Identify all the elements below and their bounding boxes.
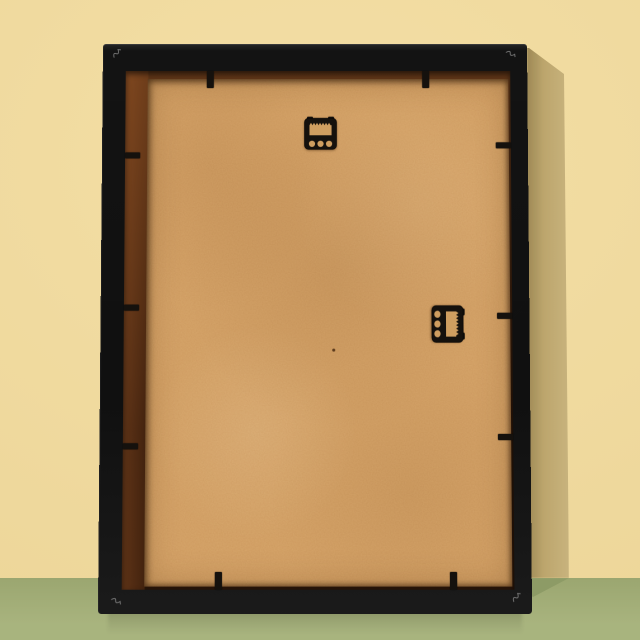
sawtooth-hanger-side-icon: [429, 304, 468, 344]
flexi-tab-bottom-right: [450, 572, 457, 590]
v-nail-mark-top-right: [504, 47, 518, 61]
flexi-tab-top-left: [207, 71, 214, 88]
flexi-tab-top-right: [422, 71, 429, 88]
speck: [332, 349, 335, 352]
flexi-tab-right-1: [496, 142, 511, 148]
flexi-tab-bottom-left: [215, 572, 222, 590]
flexi-tab-left-2: [124, 305, 139, 311]
flexi-tab-right-2: [497, 313, 512, 319]
v-nail-mark-bottom-left: [109, 594, 124, 608]
photo-back-of-picture-frame: [0, 0, 640, 640]
cast-shadow-on-wall: [527, 47, 569, 578]
flexi-tab-right-3: [498, 434, 513, 440]
picture-frame-back: [98, 44, 532, 614]
sawtooth-hanger-top-icon: [303, 114, 338, 152]
v-nail-mark-bottom-right: [509, 590, 524, 604]
flexi-tab-left-1: [125, 152, 140, 158]
flexi-tab-left-3: [123, 443, 138, 449]
v-nail-mark-top-left: [110, 46, 124, 60]
